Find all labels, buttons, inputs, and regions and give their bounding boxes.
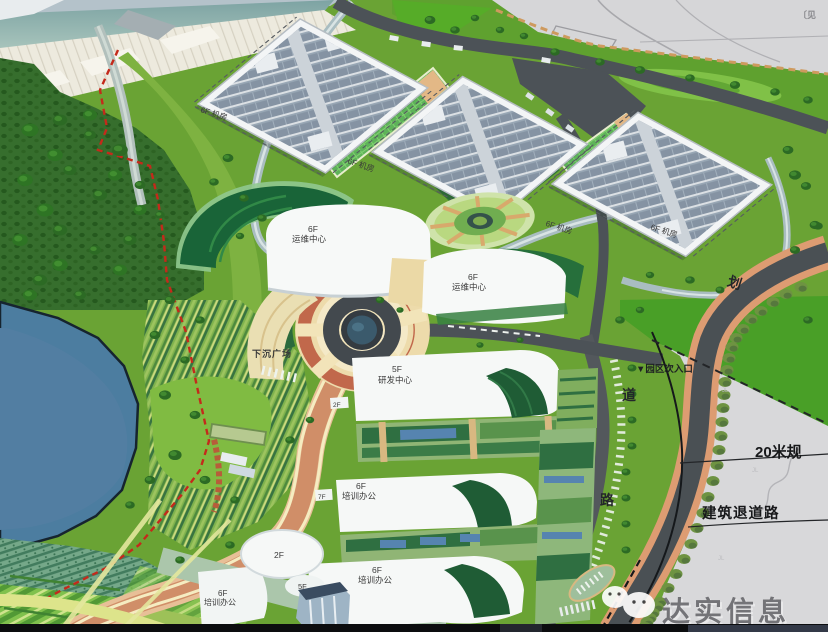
- svg-text:JL: JL: [752, 468, 759, 474]
- svg-text:2F: 2F: [333, 402, 341, 409]
- svg-text:路: 路: [600, 492, 615, 508]
- svg-text:▼园区次入口: ▼园区次入口: [636, 363, 693, 375]
- svg-text:下沉广场: 下沉广场: [252, 348, 292, 359]
- svg-text:JL: JL: [718, 556, 725, 562]
- svg-text:达实信息: 达实信息: [662, 595, 790, 627]
- svg-text:20米规: 20米规: [755, 443, 802, 461]
- svg-text:建筑退道路: 建筑退道路: [702, 504, 780, 522]
- svg-text:〔见: 〔见: [798, 10, 816, 20]
- svg-text:2F: 2F: [274, 550, 284, 560]
- svg-text:7F: 7F: [318, 494, 326, 501]
- svg-text:道: 道: [622, 387, 636, 403]
- svg-text:JL: JL: [722, 388, 729, 394]
